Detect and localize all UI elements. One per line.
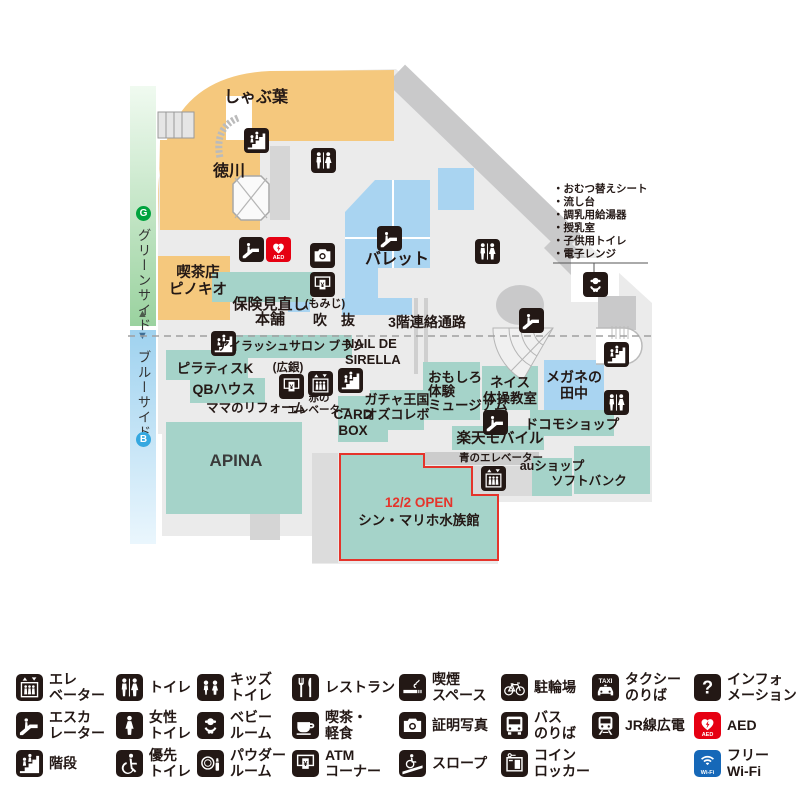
legend-item-taxi: タクシー のりば: [592, 674, 685, 701]
toilet-icon: [311, 148, 336, 173]
escalator-icon: [16, 712, 43, 739]
legend-item-train: JR線広電: [592, 712, 685, 739]
legend-item-baby-room: ベビー ルーム: [197, 712, 286, 739]
legend-item-aed: AEDAED: [694, 712, 797, 739]
legend-item-female-toilet: 女性 トイレ: [116, 712, 191, 739]
smoking-icon: [399, 674, 426, 701]
wheelchair-icon: [116, 750, 143, 777]
legend-column-8: インフォ メーション AEDAED Wi-Fiフリー Wi-Fi: [694, 674, 797, 788]
coin-locker-icon: [501, 750, 528, 777]
stairs-icon: [338, 368, 363, 393]
store-label-pinocchio: 喫茶店 ピノキオ: [169, 265, 227, 298]
legend-item-priority-toilet: 優先 トイレ: [116, 750, 191, 777]
legend-column-5: 喫煙 スペース 証明写真 スロープ: [399, 674, 488, 788]
elevator-icon: [16, 674, 43, 701]
legend-item-kids-toilet: キッズ トイレ: [197, 674, 286, 701]
wifi-icon: Wi-Fi: [694, 750, 721, 777]
legend-column-1: エレ ベーター エスカ レーター 階段: [16, 674, 105, 788]
legend-column-4: レストラン 喫茶・ 軽食 ATM コーナー: [292, 674, 395, 788]
legend-item-bicycle: 駐輪場: [501, 674, 590, 701]
legend-column-7: タクシー のりば JR線広電: [592, 674, 685, 750]
store-label-tokugawa: 徳川: [213, 163, 245, 181]
female-toilet-icon: [116, 712, 143, 739]
photo-icon: [310, 243, 335, 268]
cafe-icon: [292, 712, 319, 739]
escalator-icon: [377, 226, 402, 251]
aed-icon: AED: [266, 237, 291, 262]
store-label-nail: NAIL DE SIRELLA: [345, 336, 401, 367]
legend-column-6: 駐輪場 バス のりば コイン ロッカー: [501, 674, 590, 788]
legend-item-cafe: 喫茶・ 軽食: [292, 712, 395, 739]
bus-icon: [501, 712, 528, 739]
store-label-neisu: ネイス 体操教室: [483, 375, 537, 406]
legend-item-photo: 証明写真: [399, 712, 488, 739]
stairs-icon: [16, 750, 43, 777]
legend-item-stairs: 階段: [16, 750, 105, 777]
legend-column-2: トイレ 女性 トイレ 優先 トイレ: [116, 674, 191, 788]
legend-item-atm: ATM コーナー: [292, 750, 395, 777]
store-label-pilates: ピラティスK: [177, 361, 253, 377]
restaurant-icon: [292, 674, 319, 701]
bicycle-icon: [501, 674, 528, 701]
baby-room-icon: [197, 712, 224, 739]
legend-item-locker: コイン ロッカー: [501, 750, 590, 777]
store-label-aquarium: シン・マリホ水族館: [358, 513, 480, 529]
store-label-hirogin: (広銀): [273, 362, 304, 375]
escalator-icon: [239, 237, 264, 262]
store-label-mama: ママのリフォーム: [206, 401, 306, 415]
atm-icon: [292, 750, 319, 777]
legend-item-restaurant: レストラン: [292, 674, 395, 701]
store-label-qb: QBハウス: [193, 381, 256, 397]
legend-item-slope: スロープ: [399, 750, 488, 777]
legend-item-wifi: Wi-Fiフリー Wi-Fi: [694, 750, 797, 777]
baby-room-notes: ・おむつ替えシート ・流し台 ・調乳用給湯器 ・授乳室 ・子供用トイレ ・電子レ…: [553, 183, 648, 261]
powder-room-icon: [197, 750, 224, 777]
toilet-icon: [604, 390, 629, 415]
store-label-au: auショップ: [520, 459, 585, 473]
store-label-megane: メガネの 田中: [546, 369, 602, 401]
store-label-apina: APINA: [210, 451, 263, 471]
baby-room-icon: [583, 272, 608, 297]
store-label-hoken-honpo: 本舗: [255, 311, 285, 328]
aquarium-open-label: 12/2 OPEN: [385, 495, 453, 511]
kids-toilet-icon: [197, 674, 224, 701]
legend-column-3: キッズ トイレ ベビー ルーム パウダー ルーム: [197, 674, 286, 788]
store-label-shabuyo: しゃぶ葉: [224, 89, 288, 107]
store-label-rakuten: 楽天モバイル: [457, 431, 544, 448]
area-label-bridge: 3階連絡通路: [388, 314, 466, 330]
store-label-hoken-momiji: (もみじ): [305, 298, 345, 311]
store-label-softbank: ソフトバンク: [551, 474, 627, 488]
legend-item-elevator: エレ ベーター: [16, 674, 105, 701]
legend-item-bus: バス のりば: [501, 712, 590, 739]
store-label-palette: バレット: [365, 251, 429, 269]
elevator-icon: [481, 466, 506, 491]
toilet-icon: [475, 239, 500, 264]
legend-item-information: インフォ メーション: [694, 674, 797, 701]
stairs-icon: [604, 342, 629, 367]
stairs-icon: [244, 128, 269, 153]
floor-map-page: G グリーンサイド ▲ ▼ ブルーサイド B: [0, 0, 800, 800]
aed-icon: AED: [694, 712, 721, 739]
photo-icon: [399, 712, 426, 739]
question-icon: [694, 674, 721, 701]
taxi-icon: [592, 674, 619, 701]
store-label-gacha: ガチャ王国 オズコレボ: [364, 393, 429, 423]
atm-icon: [310, 272, 335, 297]
atrium-void: [233, 176, 269, 220]
legend-item-powder-room: パウダー ルーム: [197, 750, 286, 777]
area-label-atrium: 吹 抜: [313, 312, 355, 328]
train-icon: [592, 712, 619, 739]
legend-item-escalator: エスカ レーター: [16, 712, 105, 739]
toilet-icon: [116, 674, 143, 701]
store-label-eyelash: アイラッシュサロン ブラン: [218, 340, 365, 354]
legend-item-toilet: トイレ: [116, 674, 191, 701]
legend-item-smoking: 喫煙 スペース: [399, 674, 488, 701]
escalator-icon: [519, 308, 544, 333]
slope-icon: [399, 750, 426, 777]
